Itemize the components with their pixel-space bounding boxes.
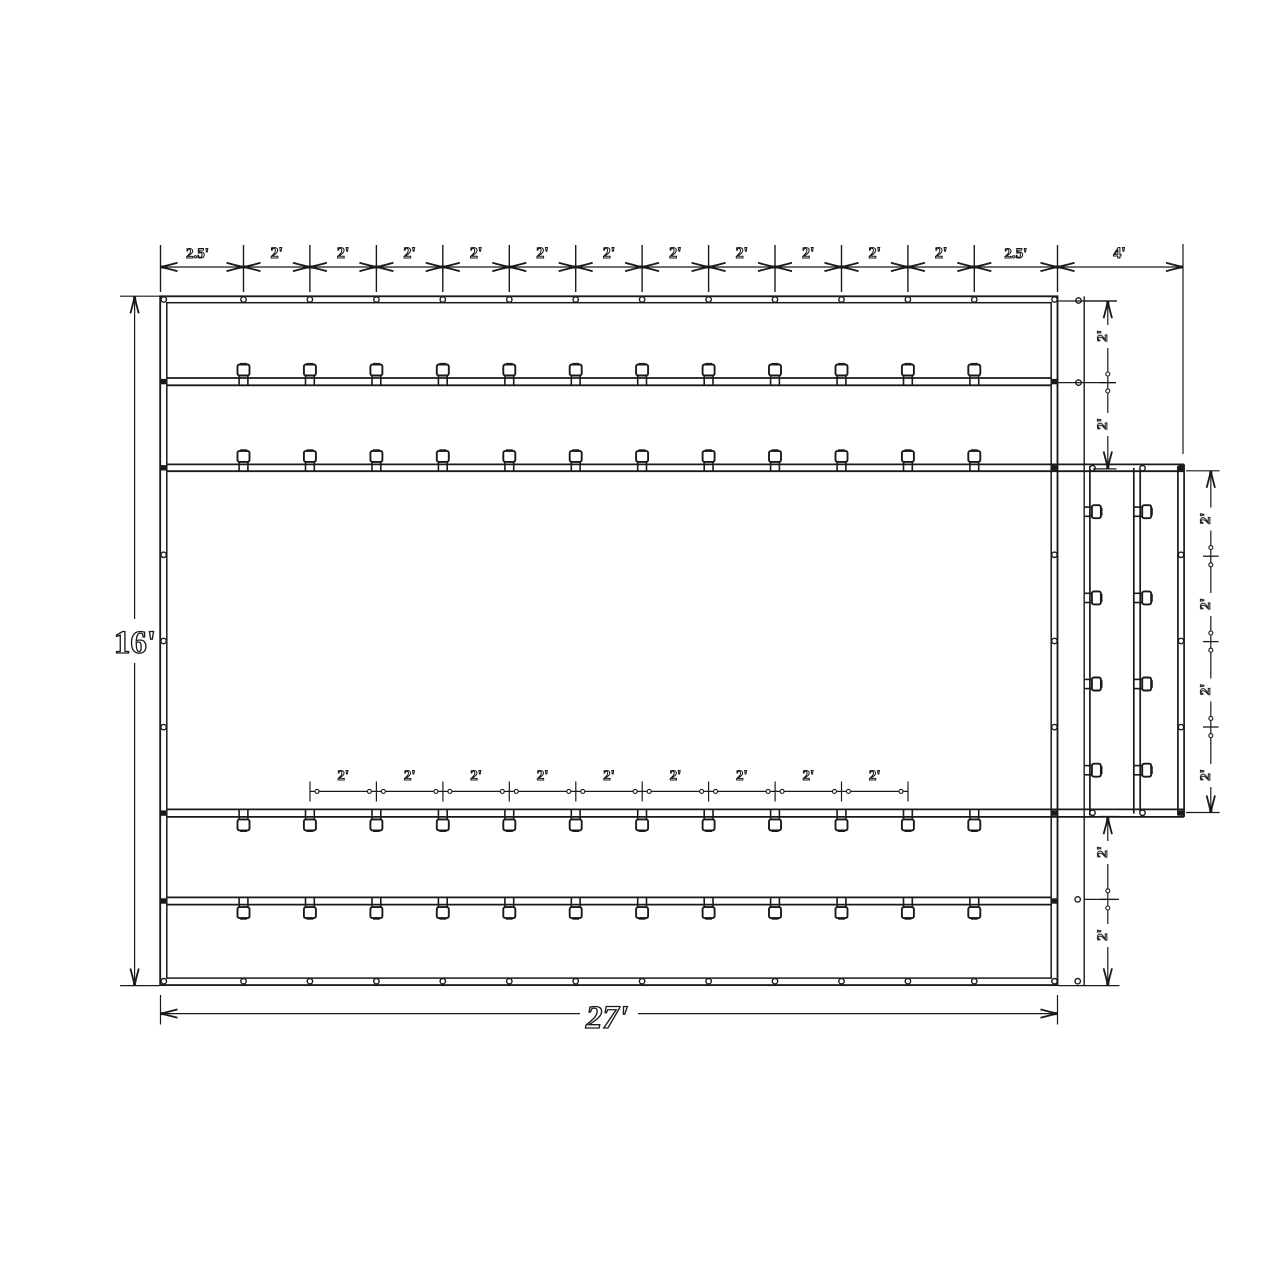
svg-text:2': 2' bbox=[669, 245, 681, 262]
svg-text:2': 2' bbox=[1198, 769, 1214, 781]
svg-text:2': 2' bbox=[1095, 330, 1111, 342]
svg-text:2.5': 2.5' bbox=[1004, 246, 1027, 262]
svg-text:2': 2' bbox=[736, 245, 748, 262]
svg-text:2': 2' bbox=[802, 768, 814, 784]
svg-text:2': 2' bbox=[603, 768, 615, 784]
svg-text:2': 2' bbox=[470, 245, 482, 262]
svg-text:2': 2' bbox=[536, 245, 548, 262]
svg-text:2': 2' bbox=[1095, 846, 1111, 858]
svg-text:2': 2' bbox=[1095, 418, 1111, 430]
svg-text:2': 2' bbox=[1198, 684, 1214, 696]
svg-text:2': 2' bbox=[868, 245, 880, 262]
svg-text:2': 2' bbox=[670, 768, 682, 784]
svg-text:2': 2' bbox=[869, 768, 881, 784]
svg-text:2': 2' bbox=[736, 768, 748, 784]
svg-text:2': 2' bbox=[337, 245, 349, 262]
svg-text:4': 4' bbox=[1113, 245, 1125, 262]
svg-text:27': 27' bbox=[585, 1000, 628, 1036]
svg-text:2': 2' bbox=[802, 245, 814, 262]
svg-text:2': 2' bbox=[1095, 929, 1111, 941]
svg-text:2': 2' bbox=[603, 245, 615, 262]
svg-text:2': 2' bbox=[270, 245, 282, 262]
svg-text:2': 2' bbox=[403, 245, 415, 262]
svg-text:2': 2' bbox=[537, 768, 549, 784]
svg-text:16': 16' bbox=[114, 625, 156, 661]
svg-text:2': 2' bbox=[470, 768, 482, 784]
svg-text:2.5': 2.5' bbox=[186, 246, 209, 262]
svg-text:2': 2' bbox=[1198, 598, 1214, 610]
svg-text:2': 2' bbox=[935, 245, 947, 262]
svg-text:2': 2' bbox=[404, 768, 416, 784]
svg-text:2': 2' bbox=[337, 768, 349, 784]
svg-text:2': 2' bbox=[1198, 513, 1214, 525]
